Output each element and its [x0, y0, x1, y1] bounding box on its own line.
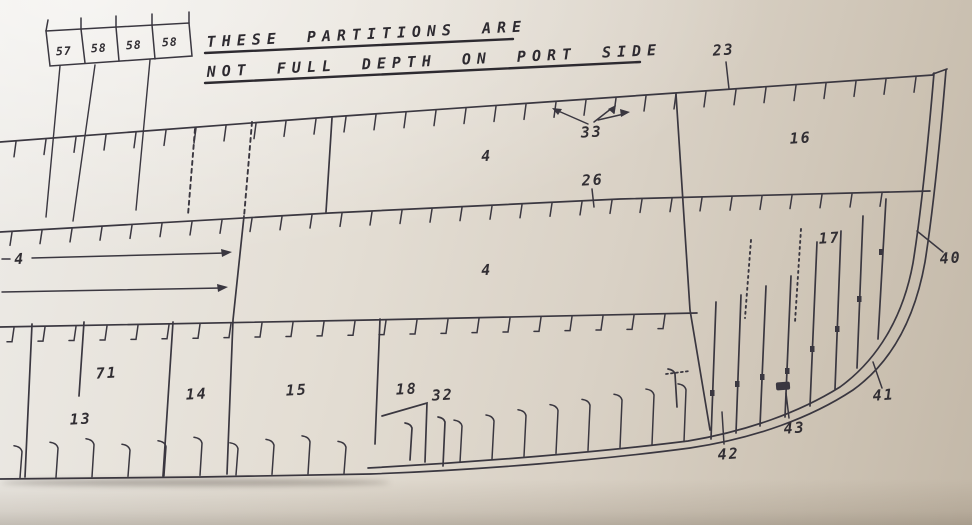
second-deck-line — [0, 191, 930, 232]
step-structure — [382, 369, 690, 466]
compartment-labels: 16 17 71 13 14 15 18 32 — [69, 128, 841, 428]
frame-label-23: 23 — [711, 40, 735, 60]
compartment-label-16: 16 — [789, 128, 812, 147]
compartment-label-17: 17 — [818, 228, 841, 247]
frame-label-33: 33 — [579, 122, 603, 141]
collision-bulkhead — [676, 94, 710, 430]
compartment-label-13: 13 — [69, 409, 92, 428]
leader-lines — [2, 62, 943, 444]
partition-box-label-58c: 58 — [162, 35, 179, 50]
compartment-label-18: 18 — [395, 379, 418, 398]
hold-label-fore-4: 4 — [14, 250, 26, 269]
frame-label-41: 41 — [872, 385, 895, 404]
compartment-label-71: 71 — [95, 363, 118, 382]
partition-box-label-57: 57 — [56, 44, 73, 59]
drawing-photo: THESE PARTITIONS ARE NOT FULL DEPTH ON P… — [0, 0, 972, 525]
frame-label-42: 42 — [717, 444, 740, 463]
hold-label-upper-4: 4 — [481, 147, 493, 166]
hold-number-labels: 4 4 4 — [14, 147, 493, 280]
frame-label-26: 26 — [580, 170, 604, 189]
drawing-linework — [0, 12, 947, 479]
compartment-label-15: 15 — [285, 380, 308, 399]
partition-box-label-58b: 58 — [126, 38, 143, 53]
frame-label-43: 43 — [783, 418, 806, 437]
frame-number-labels: 23 33 26 40 41 42 43 — [579, 40, 962, 463]
dashed-partition-lines — [188, 122, 801, 322]
ship-bow-plan-svg: THESE PARTITIONS ARE NOT FULL DEPTH ON P… — [0, 0, 972, 525]
bottom-frame-hooks — [14, 384, 686, 478]
arrowheads — [217, 105, 630, 292]
third-deck-line — [0, 313, 697, 327]
partition-box-label-58a: 58 — [91, 41, 108, 56]
compartment-label-32: 32 — [430, 385, 454, 404]
hold-label-mid-4: 4 — [481, 261, 493, 280]
frame-43-marker — [776, 382, 791, 391]
frame-label-40: 40 — [939, 248, 962, 267]
compartment-label-14: 14 — [185, 384, 208, 403]
deck-beam-ticks — [7, 77, 916, 342]
bow-frame-lines — [710, 199, 886, 439]
